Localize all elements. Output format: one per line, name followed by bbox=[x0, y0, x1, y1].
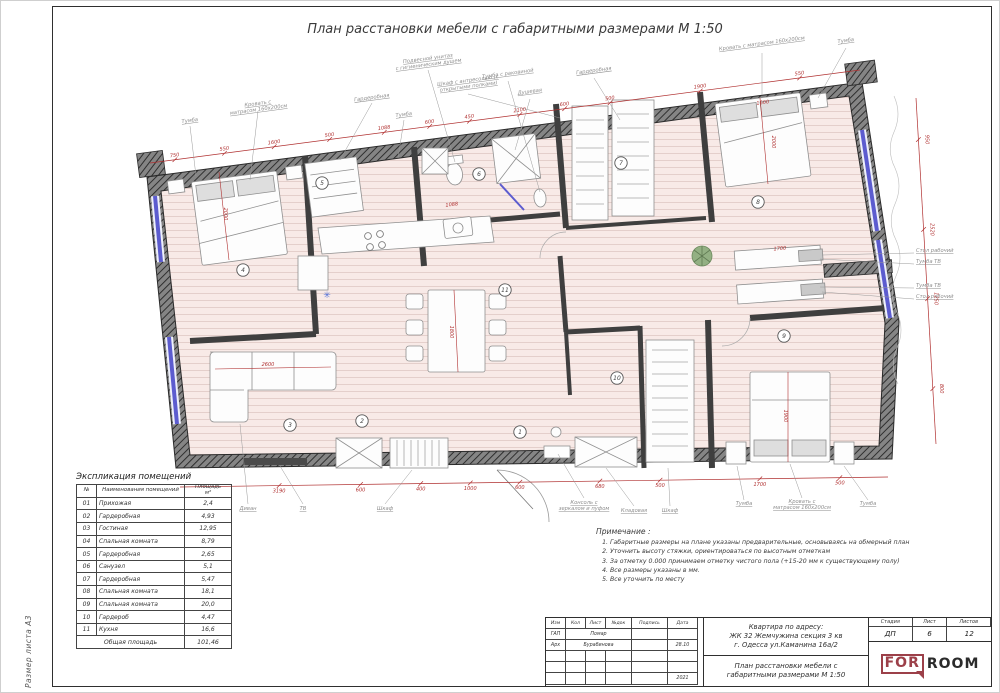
forroom-logo: FOR ROOM bbox=[869, 642, 991, 686]
dimension-label: 600 bbox=[424, 119, 434, 126]
bed-bottom-right bbox=[750, 372, 830, 462]
wardrobe-05 bbox=[305, 157, 364, 217]
explication-total-row: Общая площадь 101,46 bbox=[77, 636, 232, 649]
furniture-label: Тумба bbox=[181, 117, 198, 125]
dimension-label: 2000 bbox=[770, 136, 776, 149]
nightstand bbox=[726, 442, 746, 464]
furniture-label: Тумба bbox=[736, 501, 753, 507]
dimension-label: 500 bbox=[605, 95, 615, 102]
furniture-label: Тумба bbox=[395, 111, 412, 119]
dimension-label: 600 bbox=[356, 487, 366, 493]
dimension-label: 550 bbox=[794, 70, 804, 77]
room-number: 9 bbox=[782, 333, 786, 340]
entrance-door-arc bbox=[497, 470, 549, 522]
col-header-area: Площадьм² bbox=[185, 485, 232, 498]
sheet-value: 6 bbox=[913, 627, 948, 641]
explication-row: 03Гостиная12,95 bbox=[77, 523, 232, 536]
explication-row: 05Гардеробная2,65 bbox=[77, 548, 232, 561]
nightstand bbox=[285, 165, 303, 180]
logo-room: ROOM bbox=[927, 656, 980, 672]
furniture-label: Шкаф bbox=[662, 508, 679, 514]
dimension-label: 2000 bbox=[222, 208, 228, 221]
explication-row: 08Спальная комната18,1 bbox=[77, 586, 232, 599]
dimension-label: 2600 bbox=[262, 362, 275, 368]
explication-row: 06Санузел5,1 bbox=[77, 560, 232, 573]
kitchen-sink bbox=[443, 216, 473, 238]
note-item: За отметку 0.000 принимаем отметку чисто… bbox=[610, 557, 952, 566]
room-number: 2 bbox=[360, 418, 364, 425]
dimension-label: 600 bbox=[515, 485, 525, 491]
furniture-label: Тумба ТВ bbox=[916, 259, 941, 265]
col-header-num: № bbox=[77, 485, 97, 498]
console bbox=[544, 446, 570, 458]
pouf bbox=[551, 427, 561, 437]
furniture-label: Тумба bbox=[837, 37, 854, 45]
furniture-label: Душевая bbox=[516, 87, 542, 96]
room-number: 8 bbox=[756, 199, 760, 206]
furniture-label: Шкаф bbox=[377, 506, 394, 512]
note-item: Уточнить высоту стяжки, ориентироваться … bbox=[610, 547, 952, 556]
dimension-label: 1700 bbox=[753, 482, 766, 488]
stage-grid: Стадия Лист Листов ДП 6 12 bbox=[869, 618, 991, 642]
furniture-label: Кровать с матрасом 160х200см bbox=[719, 35, 806, 52]
sheet-label: Лист bbox=[913, 618, 948, 627]
furniture-label: Гардеробная bbox=[354, 93, 390, 104]
dimension-label: 800 bbox=[938, 384, 944, 394]
closet-kladovaya bbox=[575, 437, 637, 467]
dimension-label: 1600 bbox=[267, 139, 280, 147]
dimension-label: 3190 bbox=[273, 489, 286, 495]
explication-block: Экспликация помещений № Наименования пом… bbox=[76, 472, 236, 649]
total-label: Общая площадь bbox=[77, 636, 185, 649]
notes-list: Габаритные размеры на плане указаны пред… bbox=[610, 538, 952, 584]
furniture-label: Тумба bbox=[860, 501, 877, 507]
sheets-label: Листов bbox=[947, 618, 991, 627]
ac-symbol: ✳ bbox=[323, 291, 331, 301]
notes-title: Примечание : bbox=[596, 527, 952, 536]
explication-body: 01Прихожая2,402Гардеробная4,9303Гостиная… bbox=[77, 497, 232, 636]
notes-block: Примечание : Габаритные размеры на плане… bbox=[596, 527, 952, 584]
furniture-label: Стол рабочий bbox=[916, 248, 954, 254]
furniture-label: Диван bbox=[238, 506, 257, 512]
room-number: 7 bbox=[619, 160, 623, 167]
dimension-label: 600 bbox=[559, 101, 569, 108]
vent-shaft bbox=[422, 148, 448, 174]
stage-label: Стадия bbox=[869, 618, 913, 627]
bed-top-right bbox=[715, 93, 811, 188]
dimension-label: 750 bbox=[170, 152, 180, 159]
closet-x-left bbox=[336, 438, 382, 468]
dimension-label: 1000 bbox=[464, 486, 477, 492]
dimension-label: 680 bbox=[595, 484, 605, 490]
wardrobe-10 bbox=[646, 340, 694, 462]
dimension-label: 500 bbox=[324, 132, 334, 139]
sheets-value: 12 bbox=[947, 627, 991, 641]
room-number: 4 bbox=[241, 267, 245, 274]
furniture-label: ТВ bbox=[300, 506, 307, 512]
nightstand bbox=[834, 442, 854, 464]
document-title: План расстановки мебели с габаритными ра… bbox=[704, 656, 868, 686]
dimension-label: 1088 bbox=[377, 125, 390, 133]
dimension-label: 1900 bbox=[693, 83, 706, 91]
dimension-label: 1900 bbox=[782, 410, 788, 423]
shower bbox=[491, 133, 540, 183]
furniture-label: Гардеробная bbox=[576, 66, 612, 77]
wall-pillar bbox=[845, 60, 878, 86]
closet-clothes bbox=[390, 438, 448, 468]
total-value: 101,46 bbox=[185, 636, 232, 649]
furniture-label: Тумба с раковиной bbox=[482, 68, 535, 81]
stage-value: ДП bbox=[869, 627, 913, 641]
furniture-label: Консоль сзеркалом и пуфом bbox=[559, 500, 610, 512]
furniture-label: Кровать сматрасом 160х200см bbox=[229, 97, 288, 116]
project-address: Квартира по адресу: ЖК 32 Жемчужина секц… bbox=[704, 618, 868, 656]
dimension-label: 950 bbox=[923, 135, 929, 145]
room-number: 10 bbox=[613, 375, 621, 382]
revision-grid: ИзмКолЛист№докПодписьДатаГАППомарАрхБура… bbox=[546, 618, 704, 686]
tv-console bbox=[243, 458, 307, 465]
plant bbox=[692, 246, 712, 266]
col-header-name: Наименования помещений bbox=[97, 485, 185, 498]
dimension-label: 550 bbox=[219, 146, 229, 153]
explication-row: 10Гардероб4,47 bbox=[77, 611, 232, 624]
dimension-label: 500 bbox=[655, 483, 665, 489]
dimension-label: 450 bbox=[464, 114, 474, 121]
explication-row: 09Спальная комната20,0 bbox=[77, 598, 232, 611]
explication-row: 02Гардеробная4,93 bbox=[77, 510, 232, 523]
dimension-label: 2100 bbox=[513, 107, 526, 115]
furniture-label: Кровать сматрасом 160х200см bbox=[773, 499, 831, 511]
nightstand bbox=[167, 179, 185, 194]
room-number: 11 bbox=[501, 287, 509, 294]
explication-row: 11Кухня16,6 bbox=[77, 623, 232, 636]
title-block: ИзмКолЛист№докПодписьДатаГАППомарАрхБура… bbox=[545, 617, 992, 687]
wardrobe-07 bbox=[572, 100, 654, 220]
room-number: 1 bbox=[518, 429, 522, 436]
note-item: Все размеры указаны в мм. bbox=[610, 566, 952, 575]
dimension-label: 500 bbox=[835, 481, 845, 487]
bed-top-left bbox=[191, 171, 287, 266]
explication-row: 04Спальная комната8,79 bbox=[77, 535, 232, 548]
furniture-label: Тумба ТВ bbox=[916, 283, 941, 289]
logo-for: FOR bbox=[881, 654, 924, 673]
dimension-label: 400 bbox=[416, 487, 426, 493]
explication-title: Экспликация помещений bbox=[76, 472, 236, 482]
furniture-label: Подвесной унитазс гигиеническим душем bbox=[395, 52, 462, 73]
room-number: 3 bbox=[288, 422, 292, 429]
room-number: 6 bbox=[477, 171, 481, 178]
note-item: Габаритные размеры на плане указаны пред… bbox=[610, 538, 952, 547]
dimension-label: 2520 bbox=[929, 223, 935, 236]
dimension-label: 1250 bbox=[933, 292, 939, 305]
dimension-label: 1800 bbox=[448, 326, 454, 339]
explication-table: № Наименования помещений Площадьм² 01При… bbox=[76, 484, 232, 649]
wall-pillar bbox=[137, 150, 166, 177]
explication-row: 01Прихожая2,4 bbox=[77, 497, 232, 510]
furniture-label: Кладовая bbox=[621, 508, 647, 514]
explication-row: 07Гардеробная5,47 bbox=[77, 573, 232, 586]
nightstand bbox=[809, 93, 828, 109]
note-item: Все уточнить по месту bbox=[610, 575, 952, 584]
room-number: 5 bbox=[320, 180, 324, 187]
fridge bbox=[298, 256, 328, 290]
dimension-label: 1700 bbox=[773, 246, 786, 253]
